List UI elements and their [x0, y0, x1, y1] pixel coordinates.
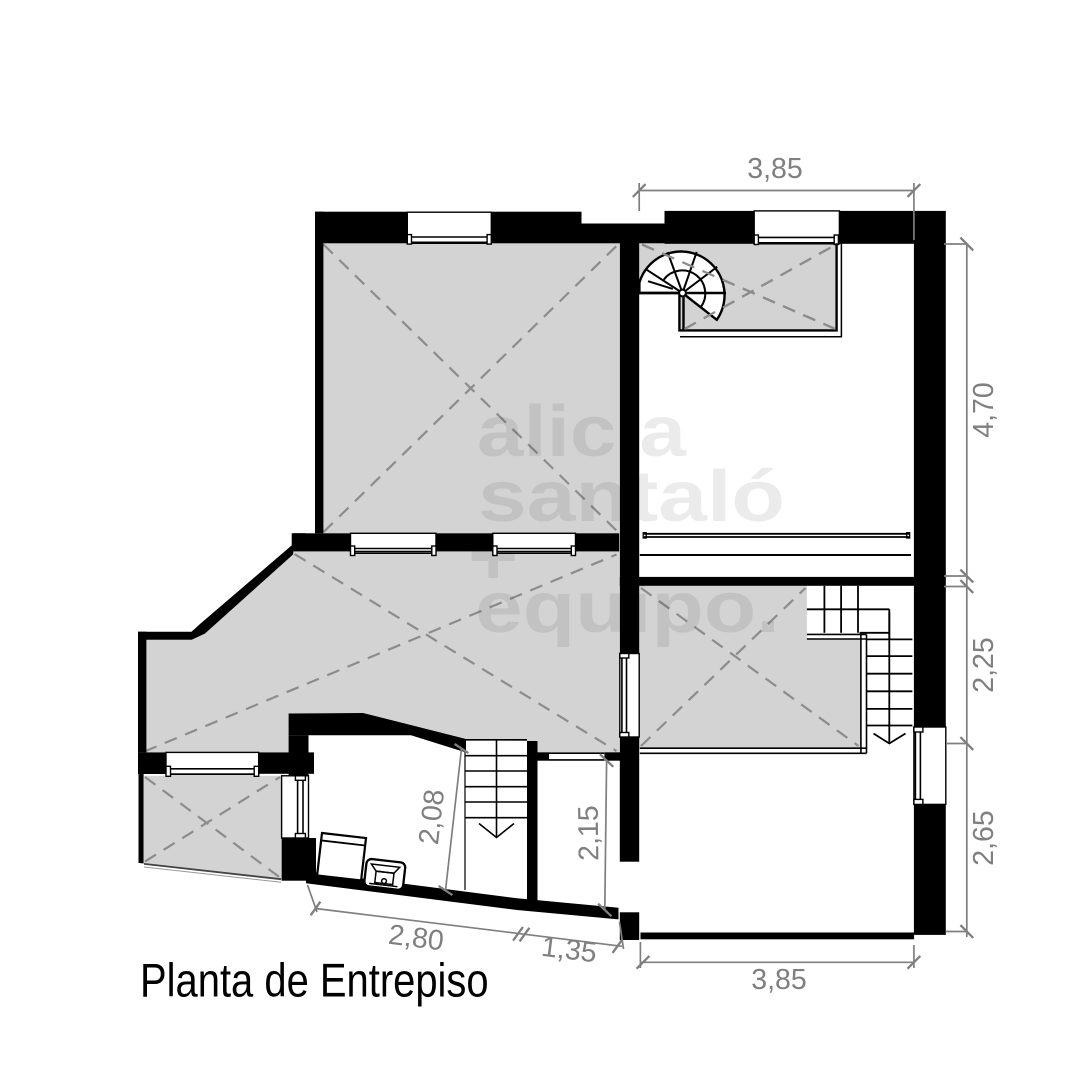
svg-text:3,85: 3,85	[747, 153, 802, 185]
svg-text:2,08: 2,08	[413, 788, 451, 847]
svg-text:2,25: 2,25	[968, 637, 1000, 692]
svg-text:2,80: 2,80	[387, 919, 446, 958]
svg-text:4,70: 4,70	[968, 382, 1000, 437]
svg-text:Planta de Entrepiso: Planta de Entrepiso	[140, 956, 489, 1008]
svg-text:1,35: 1,35	[540, 931, 599, 970]
svg-text:2,65: 2,65	[968, 810, 1000, 865]
svg-text:2,15: 2,15	[573, 805, 606, 861]
svg-text:3,85: 3,85	[751, 964, 806, 996]
